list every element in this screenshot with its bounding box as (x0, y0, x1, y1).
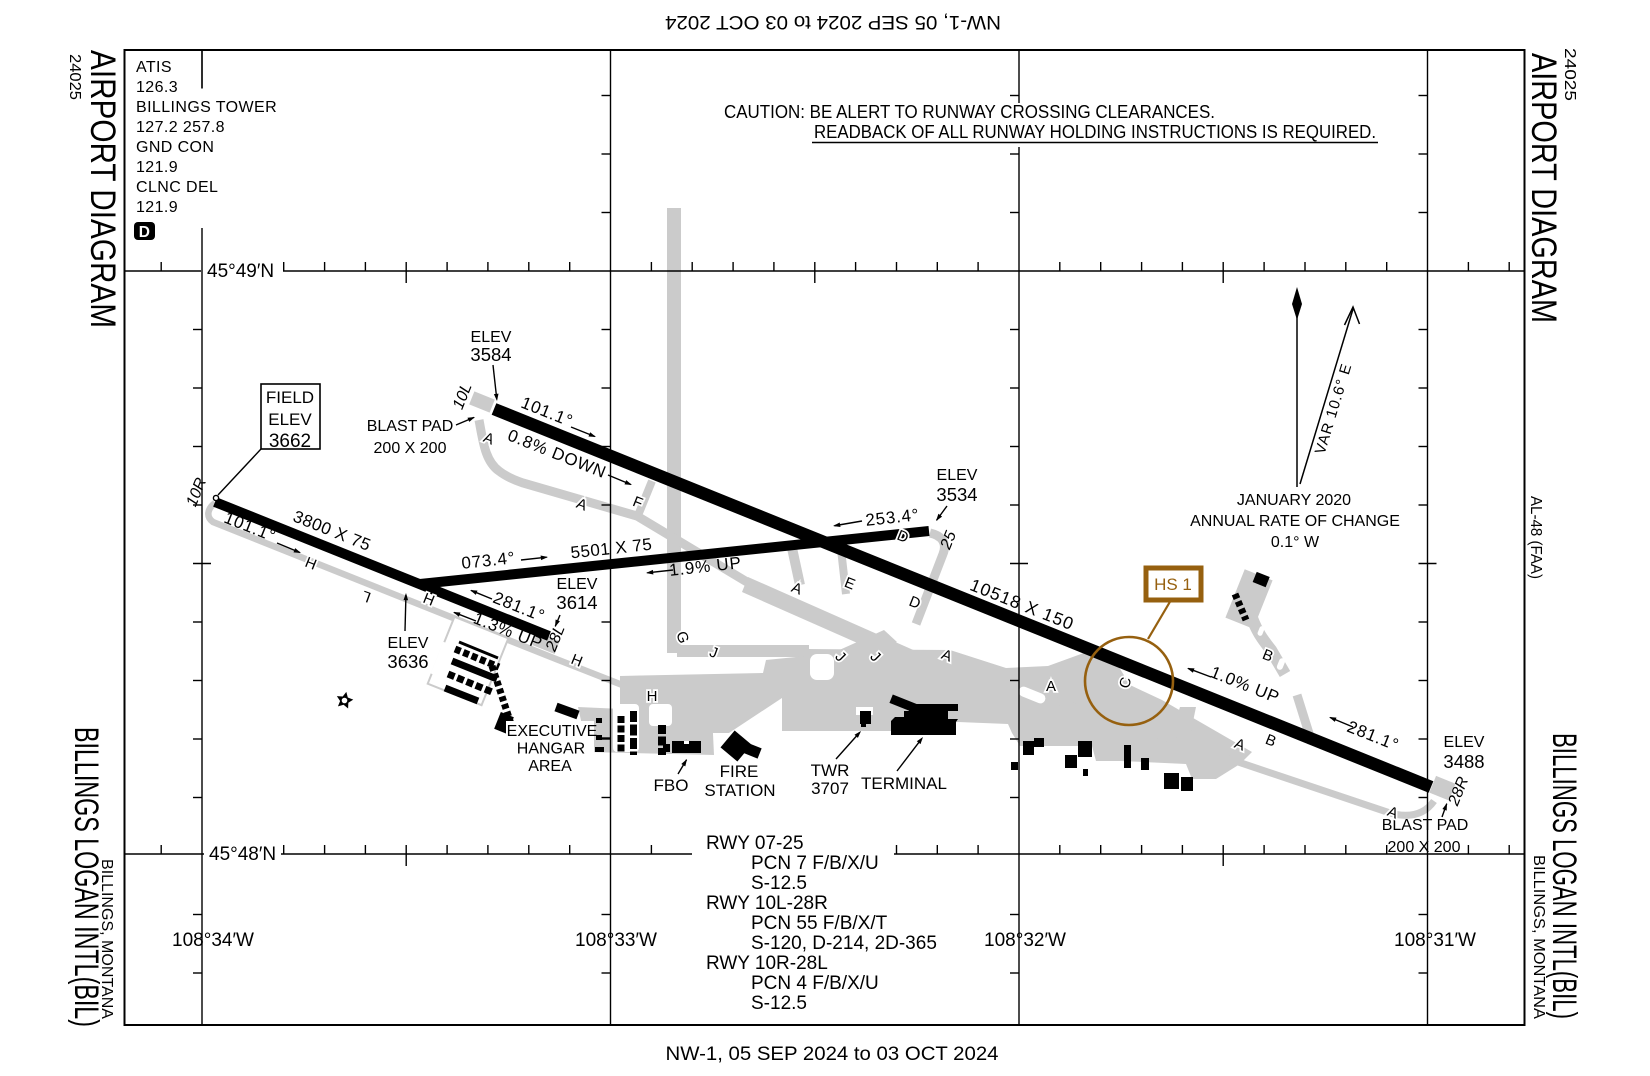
svg-text:3707: 3707 (811, 779, 849, 798)
svg-text:BILLINGS TOWER: BILLINGS TOWER (136, 99, 277, 116)
svg-text:CAUTION: BE ALERT TO RUNWAY CR: CAUTION: BE ALERT TO RUNWAY CROSSING CLE… (724, 102, 1215, 122)
svg-text:A: A (1046, 678, 1056, 695)
svg-text:S-12.5: S-12.5 (751, 873, 807, 894)
svg-text:200 X 200: 200 X 200 (374, 440, 447, 457)
svg-text:AIRPORT DIAGRAM: AIRPORT DIAGRAM (83, 50, 122, 328)
svg-text:FIELD: FIELD (266, 388, 314, 407)
svg-text:RWY 07-25: RWY 07-25 (706, 833, 804, 854)
svg-text:HS 1: HS 1 (1154, 575, 1192, 594)
svg-text:RWY 10R-28L: RWY 10R-28L (706, 953, 828, 974)
svg-text:ANNUAL RATE OF CHANGE: ANNUAL RATE OF CHANGE (1190, 513, 1400, 530)
svg-text:STATION: STATION (704, 781, 775, 800)
svg-text:CLNC DEL: CLNC DEL (136, 179, 218, 196)
svg-text:BILLINGS, MONTANA: BILLINGS, MONTANA (1530, 855, 1547, 1020)
svg-text:24025: 24025 (1561, 48, 1578, 101)
svg-text:121.9: 121.9 (136, 199, 178, 216)
svg-text:0.1° W: 0.1° W (1271, 534, 1320, 551)
svg-text:108°32′W: 108°32′W (984, 930, 1066, 951)
svg-text:3534: 3534 (936, 484, 977, 505)
svg-text:121.9: 121.9 (136, 159, 178, 176)
svg-text:GND CON: GND CON (136, 139, 214, 156)
svg-text:BLAST PAD: BLAST PAD (367, 418, 454, 435)
svg-text:READBACK OF ALL RUNWAY HOLDING: READBACK OF ALL RUNWAY HOLDING INSTRUCTI… (814, 122, 1376, 142)
svg-text:ELEV: ELEV (557, 576, 598, 593)
svg-text:ATIS: ATIS (136, 59, 172, 76)
svg-text:108°34′W: 108°34′W (172, 930, 254, 951)
svg-text:45°49′N: 45°49′N (207, 261, 274, 282)
svg-text:24025: 24025 (66, 54, 83, 100)
svg-text:PCN 7 F/B/X/U: PCN 7 F/B/X/U (751, 853, 879, 874)
svg-text:PCN 4 F/B/X/U: PCN 4 F/B/X/U (751, 973, 879, 994)
svg-text:ELEV: ELEV (388, 635, 429, 652)
svg-text:3636: 3636 (387, 651, 428, 672)
svg-text:D: D (139, 224, 151, 241)
svg-text:NW-1, 05 SEP 2024 to 03 OCT: NW-1, 05 SEP 2024 to 03 OCT 2024 (665, 11, 1001, 32)
svg-text:JANUARY 2020: JANUARY 2020 (1237, 492, 1351, 509)
svg-text:108°31′W: 108°31′W (1394, 930, 1476, 951)
svg-text:AL-48 (FAA): AL-48 (FAA) (1527, 496, 1544, 579)
svg-text:EXECUTIVE: EXECUTIVE (507, 723, 598, 740)
svg-text:AIRPORT DIAGRAM: AIRPORT DIAGRAM (1524, 53, 1563, 323)
svg-text:NW-1, 05 SEP 2024 to 03 OCT: NW-1, 05 SEP 2024 to 03 OCT 2024 (666, 1044, 999, 1065)
svg-text:ELEV: ELEV (1444, 734, 1485, 751)
svg-text:200 X 200: 200 X 200 (1388, 839, 1461, 856)
svg-text:108°33′W: 108°33′W (575, 930, 657, 951)
svg-text:3662: 3662 (269, 431, 311, 452)
svg-text:AREA: AREA (528, 758, 572, 775)
svg-text:BILLINGS, MONTANA: BILLINGS, MONTANA (98, 859, 115, 1020)
svg-text:3614: 3614 (556, 592, 597, 613)
svg-text:S-12.5: S-12.5 (751, 993, 807, 1014)
svg-text:ELEV: ELEV (937, 467, 978, 484)
svg-text:H: H (647, 688, 658, 705)
svg-text:PCN 55 F/B/X/T: PCN 55 F/B/X/T (751, 913, 888, 934)
svg-text:126.3: 126.3 (136, 79, 178, 96)
svg-text:45°48′N: 45°48′N (209, 844, 276, 865)
svg-text:3584: 3584 (470, 344, 511, 365)
svg-text:TWR: TWR (811, 761, 850, 780)
svg-text:127.2 257.8: 127.2 257.8 (136, 119, 225, 136)
svg-text:S-120, D-214, 2D-365: S-120, D-214, 2D-365 (751, 933, 937, 954)
svg-text:FBO: FBO (654, 776, 689, 795)
svg-text:3488: 3488 (1443, 751, 1484, 772)
svg-text:HANGAR: HANGAR (517, 741, 585, 758)
svg-text:FIRE: FIRE (720, 762, 759, 781)
svg-text:ELEV: ELEV (268, 410, 312, 429)
svg-text:TERMINAL: TERMINAL (861, 774, 947, 793)
svg-text:RWY 10L-28R: RWY 10L-28R (706, 893, 828, 914)
svg-text:BILLINGS LOGAN INTL(BIL): BILLINGS LOGAN INTL(BIL) (1545, 733, 1583, 1019)
